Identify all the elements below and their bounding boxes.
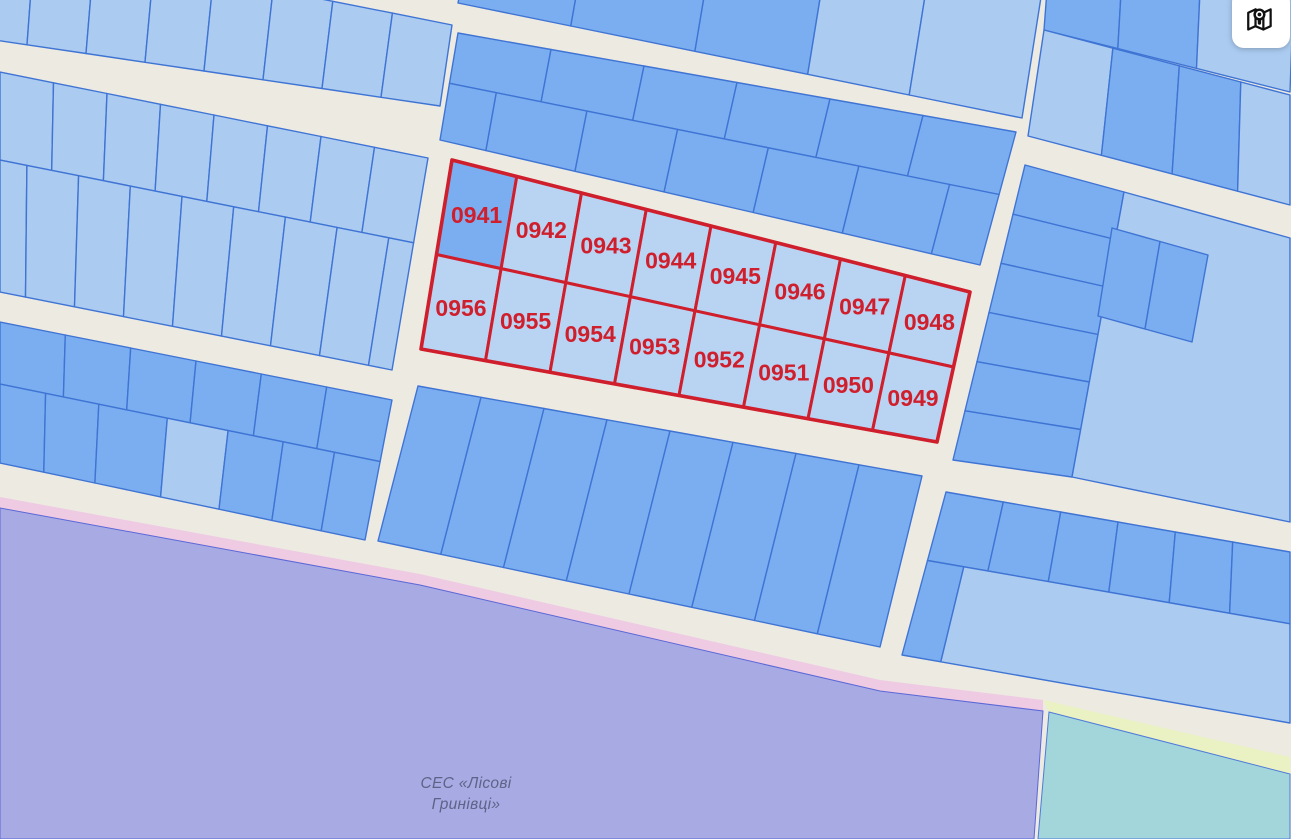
- block-bottom-right-cell: [1109, 522, 1176, 603]
- block-top-left-main-cell: [0, 72, 54, 170]
- cadastral-map-viewport: 0941094209430944094509460947094809560955…: [0, 0, 1291, 839]
- block-top-left-main-cell: [103, 94, 160, 192]
- block-top-mid-upper-cell: [571, 0, 714, 51]
- block-left-lower-cell: [95, 404, 167, 497]
- block-top-left-upper-cell: [322, 1, 392, 97]
- block-top-left-upper-cell: [381, 13, 452, 106]
- block-top-left-main-cell: [75, 176, 131, 317]
- area-label-line1: СЕС «Лісові: [421, 775, 512, 792]
- map-mode-button[interactable]: [1232, 0, 1290, 48]
- block-top-mid-upper-cell: [909, 0, 1050, 118]
- block-left-lower-cell: [161, 418, 229, 509]
- block-bottom-right-cell: [1169, 532, 1233, 613]
- block-left-lower-cell: [0, 384, 46, 472]
- block-left-lower-cell: [44, 393, 99, 483]
- block-top-right-cell: [1238, 82, 1290, 205]
- block-top-left-main-cell: [0, 160, 27, 297]
- area-label-line2: Гринівці»: [432, 796, 501, 813]
- block-top-left-main-cell: [124, 186, 183, 326]
- block-top-left-main-cell: [26, 165, 79, 306]
- block-top-right-cell: [1101, 48, 1179, 174]
- parcel-0949[interactable]: [873, 353, 954, 442]
- block-top-right-cell: [1028, 30, 1113, 155]
- block-top-left-upper-cell: [145, 0, 214, 71]
- block-top-left-main-cell: [362, 147, 428, 243]
- map-mode-button-bg[interactable]: [1232, 0, 1290, 48]
- parcel-0948[interactable]: [889, 276, 970, 368]
- block-top-left-main-cell: [52, 83, 107, 181]
- block-top-left-main-cell: [207, 115, 268, 212]
- block-top-left-upper-cell: [263, 0, 333, 88]
- block-top-left-upper-cell: [86, 0, 154, 62]
- block-top-right-cell: [1172, 66, 1241, 191]
- block-bottom-right-cell: [1048, 512, 1118, 592]
- block-top-left-upper-cell: [204, 0, 273, 80]
- block-bottom-right-cell: [1230, 542, 1290, 624]
- cadastral-map: 0941094209430944094509460947094809560955…: [0, 0, 1291, 839]
- block-top-left-main-cell: [155, 104, 214, 201]
- block-top-mid-upper-cell: [458, 0, 586, 26]
- block-top-left-upper-cell: [27, 0, 94, 54]
